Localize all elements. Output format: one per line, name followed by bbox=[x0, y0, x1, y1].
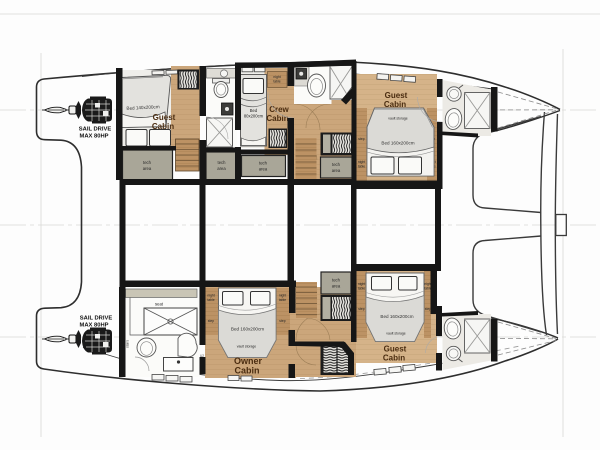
svg-text:vault storage: vault storage bbox=[388, 117, 408, 121]
svg-text:night: night bbox=[358, 282, 365, 286]
svg-text:step: step bbox=[425, 307, 432, 311]
svg-text:stairs: stairs bbox=[126, 340, 130, 348]
svg-text:area: area bbox=[332, 284, 341, 289]
svg-text:table: table bbox=[279, 298, 286, 302]
svg-text:area: area bbox=[332, 168, 341, 173]
svg-text:MAX 80HP: MAX 80HP bbox=[80, 134, 109, 140]
svg-text:SAIL DRIVE: SAIL DRIVE bbox=[80, 316, 113, 322]
svg-text:Cabin: Cabin bbox=[383, 354, 405, 363]
svg-text:vault storage: vault storage bbox=[237, 345, 257, 349]
svg-text:area: area bbox=[143, 166, 152, 171]
svg-text:night: night bbox=[279, 294, 286, 298]
svg-text:Bed 160x200cm: Bed 160x200cm bbox=[381, 141, 414, 146]
svg-text:table: table bbox=[358, 287, 365, 291]
svg-text:Guest: Guest bbox=[153, 113, 176, 122]
svg-text:Bed: Bed bbox=[250, 108, 258, 113]
svg-text:table: table bbox=[207, 298, 214, 302]
svg-text:table: table bbox=[273, 80, 280, 84]
svg-text:tech: tech bbox=[332, 278, 341, 283]
svg-text:tech: tech bbox=[143, 160, 152, 165]
svg-text:night: night bbox=[358, 160, 365, 164]
svg-text:MAX 80HP: MAX 80HP bbox=[80, 323, 109, 329]
svg-text:table: table bbox=[358, 165, 365, 169]
svg-text:step: step bbox=[279, 319, 286, 323]
svg-text:Owner: Owner bbox=[234, 356, 263, 366]
svg-text:80x200cm: 80x200cm bbox=[244, 114, 264, 119]
svg-text:step: step bbox=[358, 137, 365, 141]
svg-text:vault storage: vault storage bbox=[386, 332, 406, 336]
svg-text:night: night bbox=[207, 294, 214, 298]
svg-text:tech: tech bbox=[332, 162, 341, 167]
svg-text:tech: tech bbox=[218, 160, 227, 165]
svg-text:Cabin: Cabin bbox=[234, 366, 259, 376]
svg-text:Guest: Guest bbox=[385, 91, 408, 100]
svg-text:seat: seat bbox=[155, 302, 164, 307]
svg-text:SAIL DRIVE: SAIL DRIVE bbox=[79, 127, 112, 133]
svg-text:area: area bbox=[259, 167, 268, 172]
svg-text:Cabin: Cabin bbox=[152, 122, 174, 131]
svg-text:step: step bbox=[358, 307, 365, 311]
svg-text:night: night bbox=[273, 75, 280, 79]
svg-text:Guest: Guest bbox=[384, 345, 407, 354]
svg-text:Cabin: Cabin bbox=[266, 114, 288, 123]
svg-text:Bed 160x200cm: Bed 160x200cm bbox=[380, 314, 413, 319]
svg-text:area: area bbox=[217, 166, 226, 171]
svg-text:Bed 160x200cm: Bed 160x200cm bbox=[231, 327, 264, 332]
svg-text:step: step bbox=[208, 319, 215, 323]
svg-text:tech: tech bbox=[259, 161, 268, 166]
